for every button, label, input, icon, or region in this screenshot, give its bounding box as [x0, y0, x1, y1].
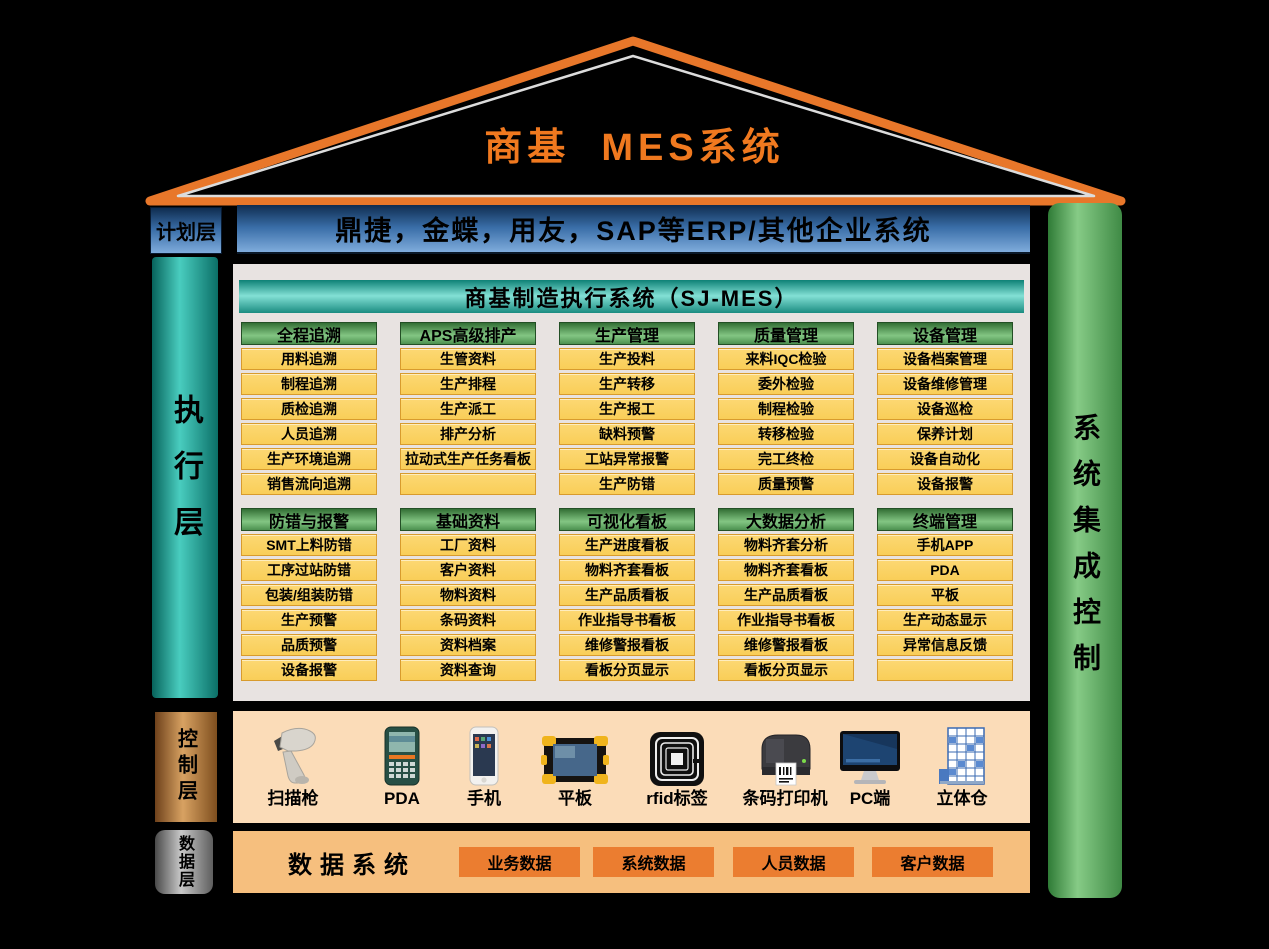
module-header: APS高级排产 [400, 322, 536, 345]
module-item: 制程检验 [718, 398, 854, 420]
device-label: 扫描枪 [238, 789, 348, 809]
control-layer-label-text: 控制层 [172, 728, 201, 806]
plan-layer-label: 计划层 [150, 207, 222, 254]
module-item: 完工终检 [718, 448, 854, 470]
module-header: 生产管理 [559, 322, 695, 345]
module-header: 可视化看板 [559, 508, 695, 531]
module-item: 保养计划 [877, 423, 1013, 445]
module-col-quality: 质量管理 来料IQC检验 委外检验 制程检验 转移检验 完工终检 质量预警 [718, 322, 854, 495]
module-item: 作业指导书看板 [559, 609, 695, 631]
data-system-title: 数据系统 [288, 831, 416, 893]
plan-layer-label-text: 计划层 [156, 216, 216, 245]
device-tablet: 平板 [520, 719, 630, 809]
module-col-equipment: 设备管理 设备档案管理 设备维修管理 设备巡检 保养计划 设备自动化 设备报警 [877, 322, 1013, 495]
module-col-bigdata: 大数据分析 物料齐套分析 物料齐套看板 生产品质看板 作业指导书看板 维修警报看… [718, 508, 854, 681]
device-scanner: 扫描枪 [238, 719, 348, 809]
module-header: 防错与报警 [241, 508, 377, 531]
module-item: 设备巡检 [877, 398, 1013, 420]
module-item: 生产转移 [559, 373, 695, 395]
module-item: 工站异常报警 [559, 448, 695, 470]
module-item: 手机APP [877, 534, 1013, 556]
module-item: 设备报警 [241, 659, 377, 681]
module-item: 设备档案管理 [877, 348, 1013, 370]
module-header: 基础资料 [400, 508, 536, 531]
module-item: 物料齐套看板 [718, 559, 854, 581]
module-item: SMT上料防错 [241, 534, 377, 556]
module-item: 转移检验 [718, 423, 854, 445]
module-header: 设备管理 [877, 322, 1013, 345]
module-item: 设备维修管理 [877, 373, 1013, 395]
module-item: 排产分析 [400, 423, 536, 445]
module-item: PDA [877, 559, 1013, 581]
module-col-basicdata: 基础资料 工厂资料 客户资料 物料资料 条码资料 资料档案 资料查询 [400, 508, 536, 681]
module-item: 生产品质看板 [718, 584, 854, 606]
module-item: 生产品质看板 [559, 584, 695, 606]
diagram-title: 商基 MES系统 [0, 116, 1269, 171]
device-warehouse: 立体仓 [907, 719, 1017, 809]
data-item-customer: 客户数据 [872, 847, 993, 877]
data-layer-label: 数据层 [155, 830, 213, 894]
module-item: 质检追溯 [241, 398, 377, 420]
module-item: 工厂资料 [400, 534, 536, 556]
module-item [400, 473, 536, 495]
module-item: 包装/组装防错 [241, 584, 377, 606]
execution-panel: 商基制造执行系统（SJ-MES） 全程追溯 用料追溯 制程追溯 质检追溯 人员追… [233, 264, 1030, 701]
module-col-production: 生产管理 生产投料 生产转移 生产报工 缺料预警 工站异常报警 生产防错 [559, 322, 695, 495]
module-item [877, 659, 1013, 681]
module-item: 品质预警 [241, 634, 377, 656]
module-item: 生产防错 [559, 473, 695, 495]
module-item: 物料齐套看板 [559, 559, 695, 581]
data-item-personnel: 人员数据 [733, 847, 854, 877]
module-item: 生产投料 [559, 348, 695, 370]
device-label: rfid标签 [622, 789, 732, 809]
control-layer-label: 控制层 [155, 712, 217, 822]
module-item: 作业指导书看板 [718, 609, 854, 631]
module-item: 生产预警 [241, 609, 377, 631]
module-item: 看板分页显示 [718, 659, 854, 681]
module-item: 用料追溯 [241, 348, 377, 370]
data-item-system: 系统数据 [593, 847, 714, 877]
warehouse-icon [907, 719, 1017, 787]
module-item: 生管资料 [400, 348, 536, 370]
device-rfid: rfid标签 [622, 719, 732, 809]
module-header: 全程追溯 [241, 322, 377, 345]
module-item: 销售流向追溯 [241, 473, 377, 495]
data-system-bar: 数据系统 业务数据 系统数据 人员数据 客户数据 [233, 831, 1030, 893]
data-item-business: 业务数据 [459, 847, 580, 877]
module-item: 工序过站防错 [241, 559, 377, 581]
module-item: 生产环境追溯 [241, 448, 377, 470]
module-col-aps: APS高级排产 生管资料 生产排程 生产派工 排产分析 拉动式生产任务看板 [400, 322, 536, 495]
module-item: 物料资料 [400, 584, 536, 606]
system-integration-bar: 系统集成控制 [1048, 203, 1122, 898]
erp-systems-text: 鼎捷，金蝶，用友，SAP等ERP/其他企业系统 [335, 209, 932, 248]
module-item: 缺料预警 [559, 423, 695, 445]
module-item: 质量预警 [718, 473, 854, 495]
module-item: 制程追溯 [241, 373, 377, 395]
module-header: 质量管理 [718, 322, 854, 345]
module-item: 设备报警 [877, 473, 1013, 495]
module-col-trace: 全程追溯 用料追溯 制程追溯 质检追溯 人员追溯 生产环境追溯 销售流向追溯 [241, 322, 377, 495]
device-label: 立体仓 [907, 789, 1017, 809]
erp-systems-bar: 鼎捷，金蝶，用友，SAP等ERP/其他企业系统 [237, 205, 1030, 254]
execution-layer-label-text: 执行层 [163, 394, 207, 562]
module-item: 拉动式生产任务看板 [400, 448, 536, 470]
module-item: 生产派工 [400, 398, 536, 420]
sjmes-header-text: 商基制造执行系统（SJ-MES） [465, 281, 799, 313]
module-item: 条码资料 [400, 609, 536, 631]
module-item: 生产排程 [400, 373, 536, 395]
module-item: 资料查询 [400, 659, 536, 681]
module-item: 客户资料 [400, 559, 536, 581]
module-item: 看板分页显示 [559, 659, 695, 681]
module-item: 资料档案 [400, 634, 536, 656]
module-col-terminal: 终端管理 手机APP PDA 平板 生产动态显示 异常信息反馈 [877, 508, 1013, 681]
module-item: 维修警报看板 [559, 634, 695, 656]
module-item: 来料IQC检验 [718, 348, 854, 370]
module-item: 异常信息反馈 [877, 634, 1013, 656]
module-item: 设备自动化 [877, 448, 1013, 470]
system-integration-bar-text: 系统集成控制 [1065, 413, 1105, 689]
scanner-icon [238, 719, 348, 787]
module-header: 大数据分析 [718, 508, 854, 531]
module-item: 平板 [877, 584, 1013, 606]
rfid-icon [622, 719, 732, 787]
sjmes-header: 商基制造执行系统（SJ-MES） [239, 280, 1024, 313]
module-row-2: 防错与报警 SMT上料防错 工序过站防错 包装/组装防错 生产预警 品质预警 设… [241, 508, 1013, 681]
module-item: 人员追溯 [241, 423, 377, 445]
execution-layer-label: 执行层 [152, 257, 218, 698]
module-item: 生产进度看板 [559, 534, 695, 556]
module-item: 生产报工 [559, 398, 695, 420]
module-col-kanban: 可视化看板 生产进度看板 物料齐套看板 生产品质看板 作业指导书看板 维修警报看… [559, 508, 695, 681]
control-devices-bar: 扫描枪 PDA [233, 711, 1030, 823]
module-col-errorproof: 防错与报警 SMT上料防错 工序过站防错 包装/组装防错 生产预警 品质预警 设… [241, 508, 377, 681]
device-label: 平板 [520, 789, 630, 809]
module-item: 生产动态显示 [877, 609, 1013, 631]
data-layer-label-text: 数据层 [172, 835, 196, 889]
module-header: 终端管理 [877, 508, 1013, 531]
module-row-1: 全程追溯 用料追溯 制程追溯 质检追溯 人员追溯 生产环境追溯 销售流向追溯 A… [241, 322, 1013, 495]
module-item: 委外检验 [718, 373, 854, 395]
module-item: 维修警报看板 [718, 634, 854, 656]
module-item: 物料齐套分析 [718, 534, 854, 556]
tablet-icon [520, 719, 630, 787]
